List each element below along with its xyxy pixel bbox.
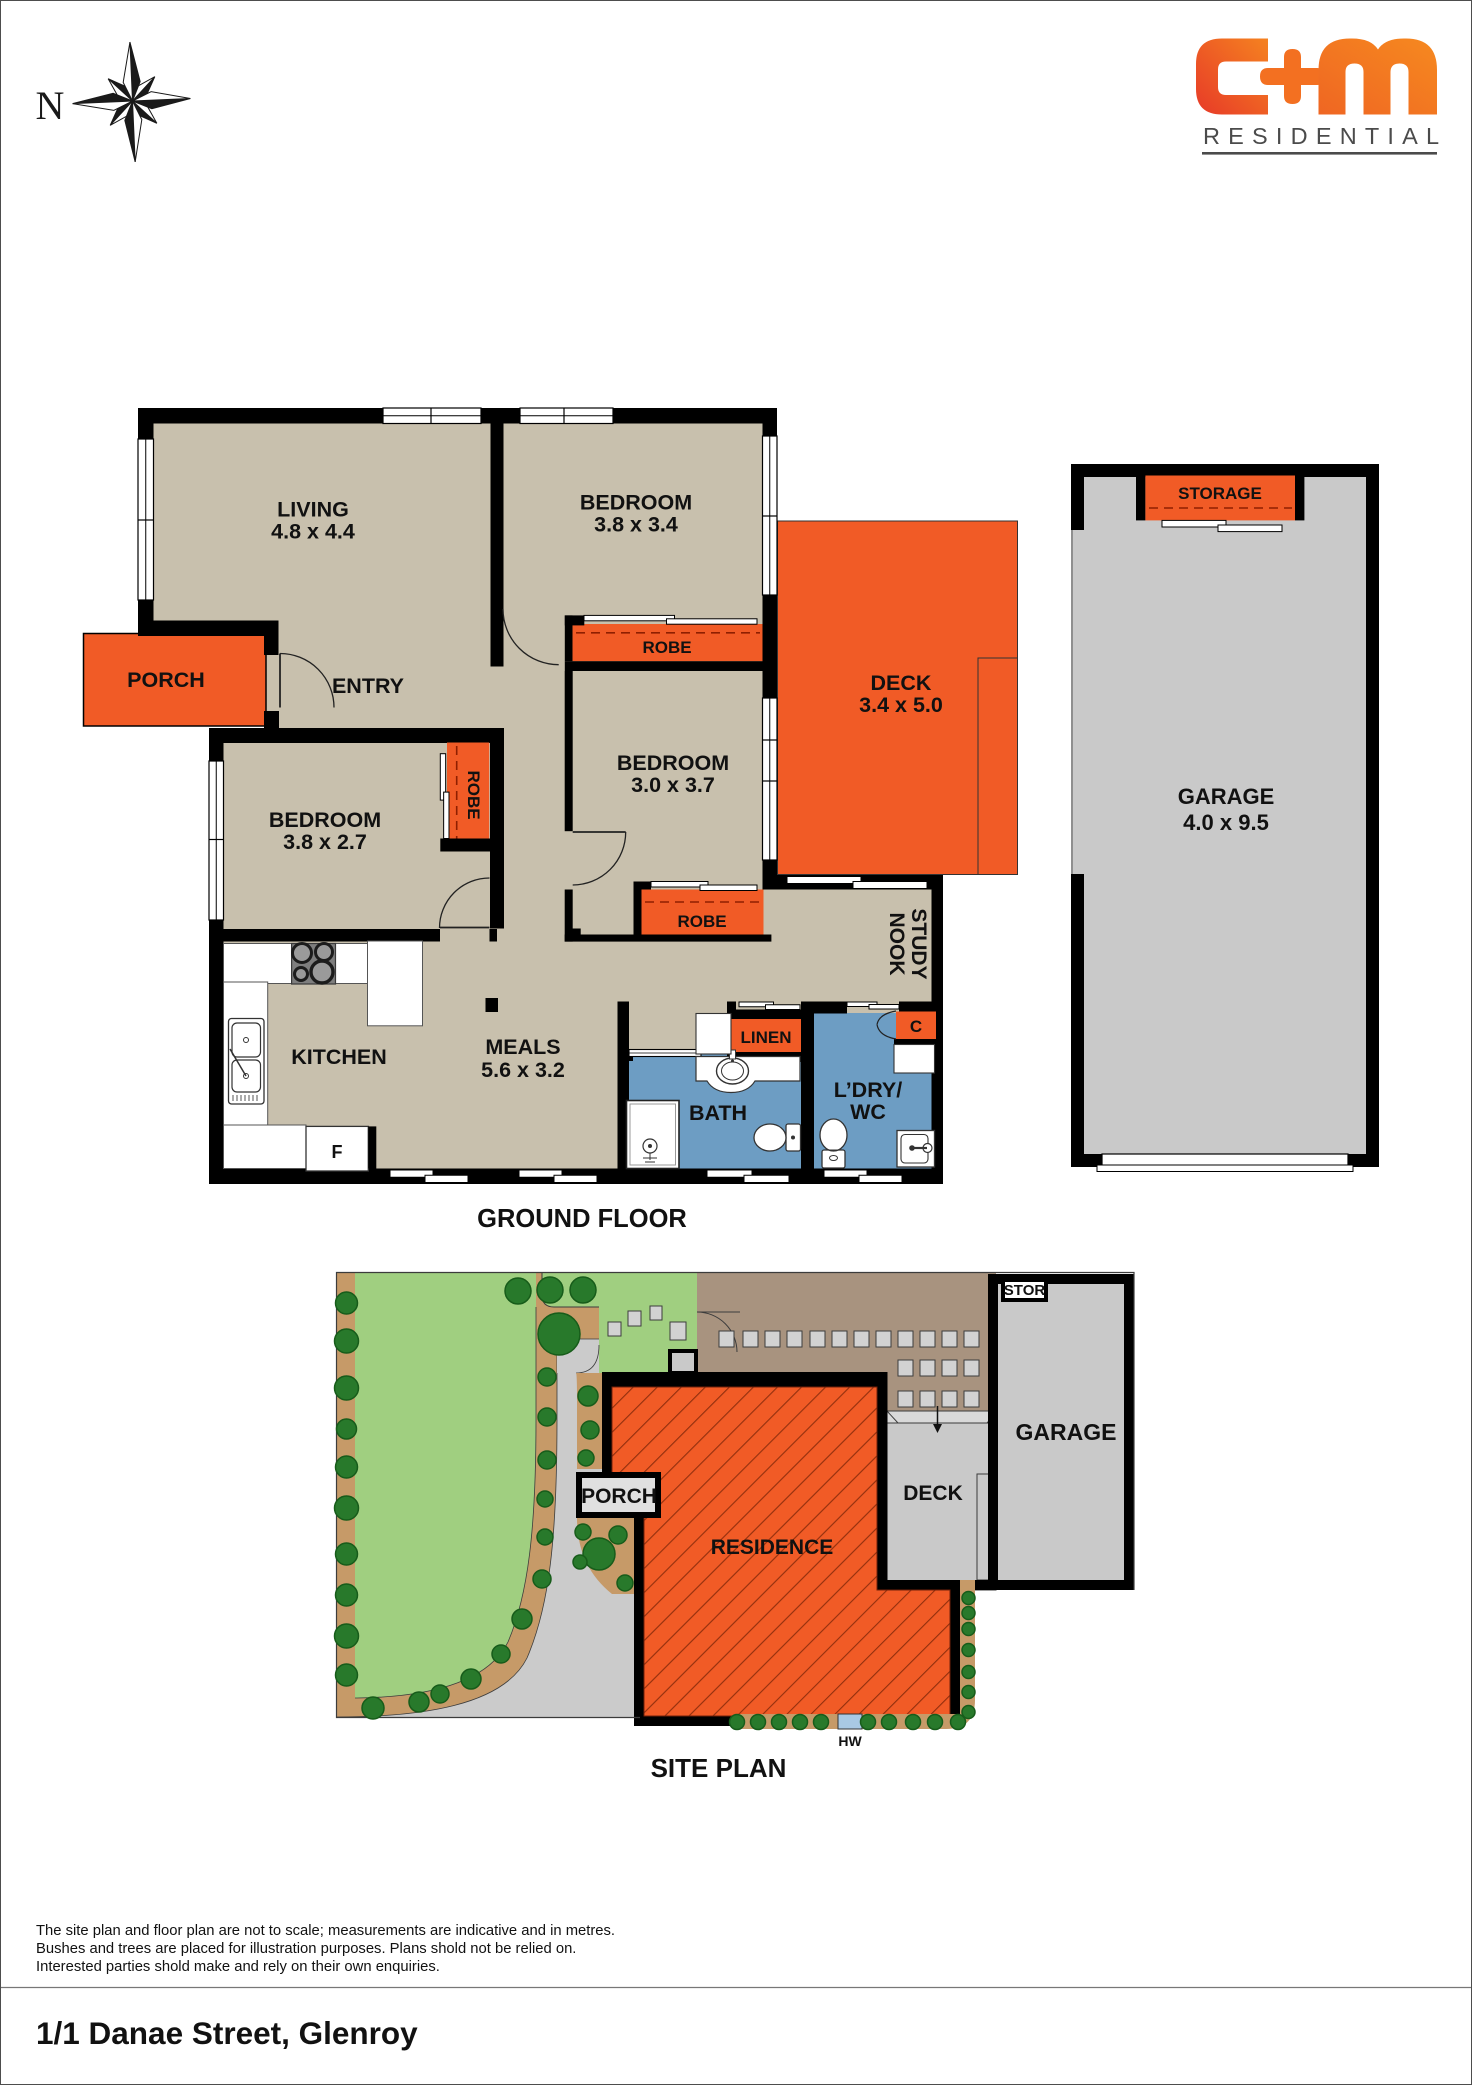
svg-text:ROBE: ROBE	[642, 638, 691, 657]
svg-text:WC: WC	[850, 1100, 886, 1124]
svg-text:BATH: BATH	[689, 1101, 747, 1125]
svg-text:BEDROOM: BEDROOM	[617, 751, 729, 775]
svg-text:ENTRY: ENTRY	[332, 674, 404, 698]
svg-text:PORCH: PORCH	[127, 668, 205, 692]
svg-text:HW: HW	[838, 1733, 862, 1749]
svg-text:C: C	[910, 1017, 922, 1036]
svg-text:Interested parties shold make: Interested parties shold make and rely o…	[36, 1959, 440, 1975]
svg-text:DECK: DECK	[903, 1482, 963, 1505]
svg-text:1/1 Danae Street, Glenroy: 1/1 Danae Street, Glenroy	[36, 2015, 418, 2051]
svg-text:BEDROOM: BEDROOM	[269, 808, 381, 832]
svg-text:3.8 x 3.4: 3.8 x 3.4	[594, 513, 678, 537]
svg-text:GROUND FLOOR: GROUND FLOOR	[477, 1205, 687, 1233]
svg-text:3.8 x 2.7: 3.8 x 2.7	[283, 830, 367, 854]
svg-text:L’DRY/: L’DRY/	[834, 1078, 903, 1102]
svg-text:LIVING: LIVING	[277, 498, 349, 522]
svg-text:N: N	[36, 83, 65, 128]
svg-text:PORCH: PORCH	[581, 1485, 657, 1508]
svg-text:4.8 x 4.4: 4.8 x 4.4	[271, 520, 355, 544]
svg-text:RESIDENCE: RESIDENCE	[711, 1536, 834, 1559]
svg-text:5.6 x 3.2: 5.6 x 3.2	[481, 1058, 565, 1082]
svg-text:MEALS: MEALS	[485, 1035, 560, 1059]
svg-text:GARAGE: GARAGE	[1178, 784, 1275, 809]
svg-text:STOR: STOR	[1004, 1282, 1046, 1299]
svg-text:NOOK: NOOK	[885, 913, 908, 976]
svg-text:ROBE: ROBE	[464, 770, 483, 819]
svg-text:3.4 x 5.0: 3.4 x 5.0	[859, 693, 943, 717]
svg-text:ROBE: ROBE	[677, 912, 726, 931]
svg-text:GARAGE: GARAGE	[1016, 1419, 1117, 1445]
svg-text:KITCHEN: KITCHEN	[291, 1045, 387, 1069]
svg-text:LINEN: LINEN	[741, 1028, 792, 1047]
svg-text:4.0 x 9.5: 4.0 x 9.5	[1183, 810, 1269, 835]
svg-text:RESIDENTIAL: RESIDENTIAL	[1203, 123, 1447, 149]
svg-text:BEDROOM: BEDROOM	[580, 491, 692, 515]
svg-text:STUDY: STUDY	[907, 908, 930, 979]
svg-text:STORAGE: STORAGE	[1178, 484, 1262, 503]
svg-text:The site plan and floor plan a: The site plan and floor plan are not to …	[36, 1923, 615, 1939]
svg-text:3.0 x 3.7: 3.0 x 3.7	[631, 773, 715, 797]
svg-text:Bushes and trees are placed fo: Bushes and trees are placed for illustra…	[36, 1941, 576, 1957]
svg-text:F: F	[332, 1142, 343, 1162]
svg-text:SITE PLAN: SITE PLAN	[651, 1753, 787, 1783]
svg-text:DECK: DECK	[871, 671, 932, 695]
